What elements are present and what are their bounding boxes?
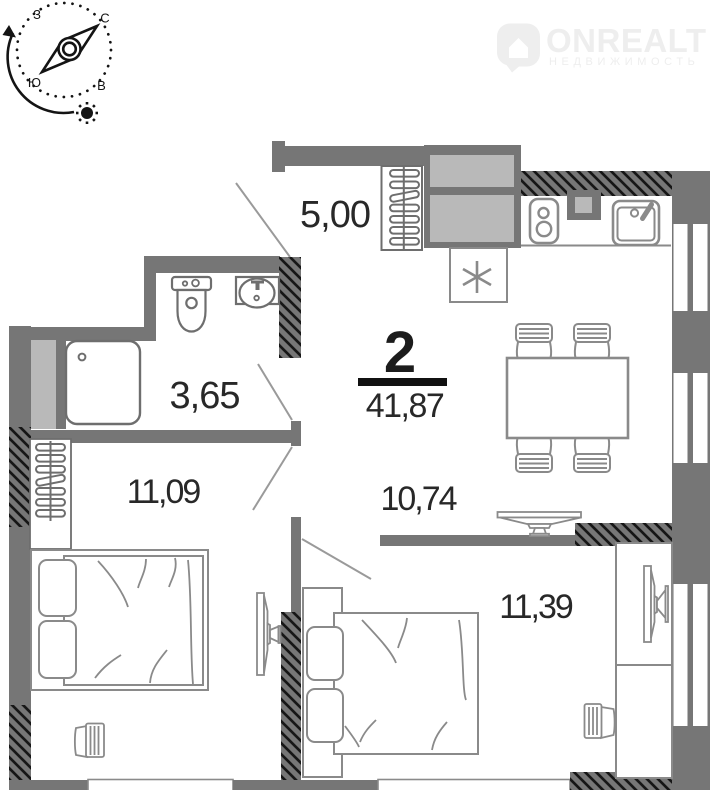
svg-text:Ю: Ю	[28, 75, 41, 90]
svg-text:С: С	[100, 11, 109, 26]
svg-text:2: 2	[384, 320, 416, 385]
svg-text:ONREALT: ONREALT	[546, 22, 707, 59]
svg-text:В: В	[97, 78, 106, 93]
svg-text:НЕДВИЖИМОСТЬ: НЕДВИЖИМОСТЬ	[549, 56, 699, 68]
svg-text:З: З	[33, 7, 41, 22]
svg-text:11,09: 11,09	[127, 473, 201, 511]
svg-text:5,00: 5,00	[300, 194, 370, 236]
svg-text:11,39: 11,39	[499, 588, 573, 626]
svg-text:10,74: 10,74	[380, 480, 456, 518]
svg-text:3,65: 3,65	[170, 375, 240, 417]
svg-text:41,87: 41,87	[366, 387, 444, 425]
